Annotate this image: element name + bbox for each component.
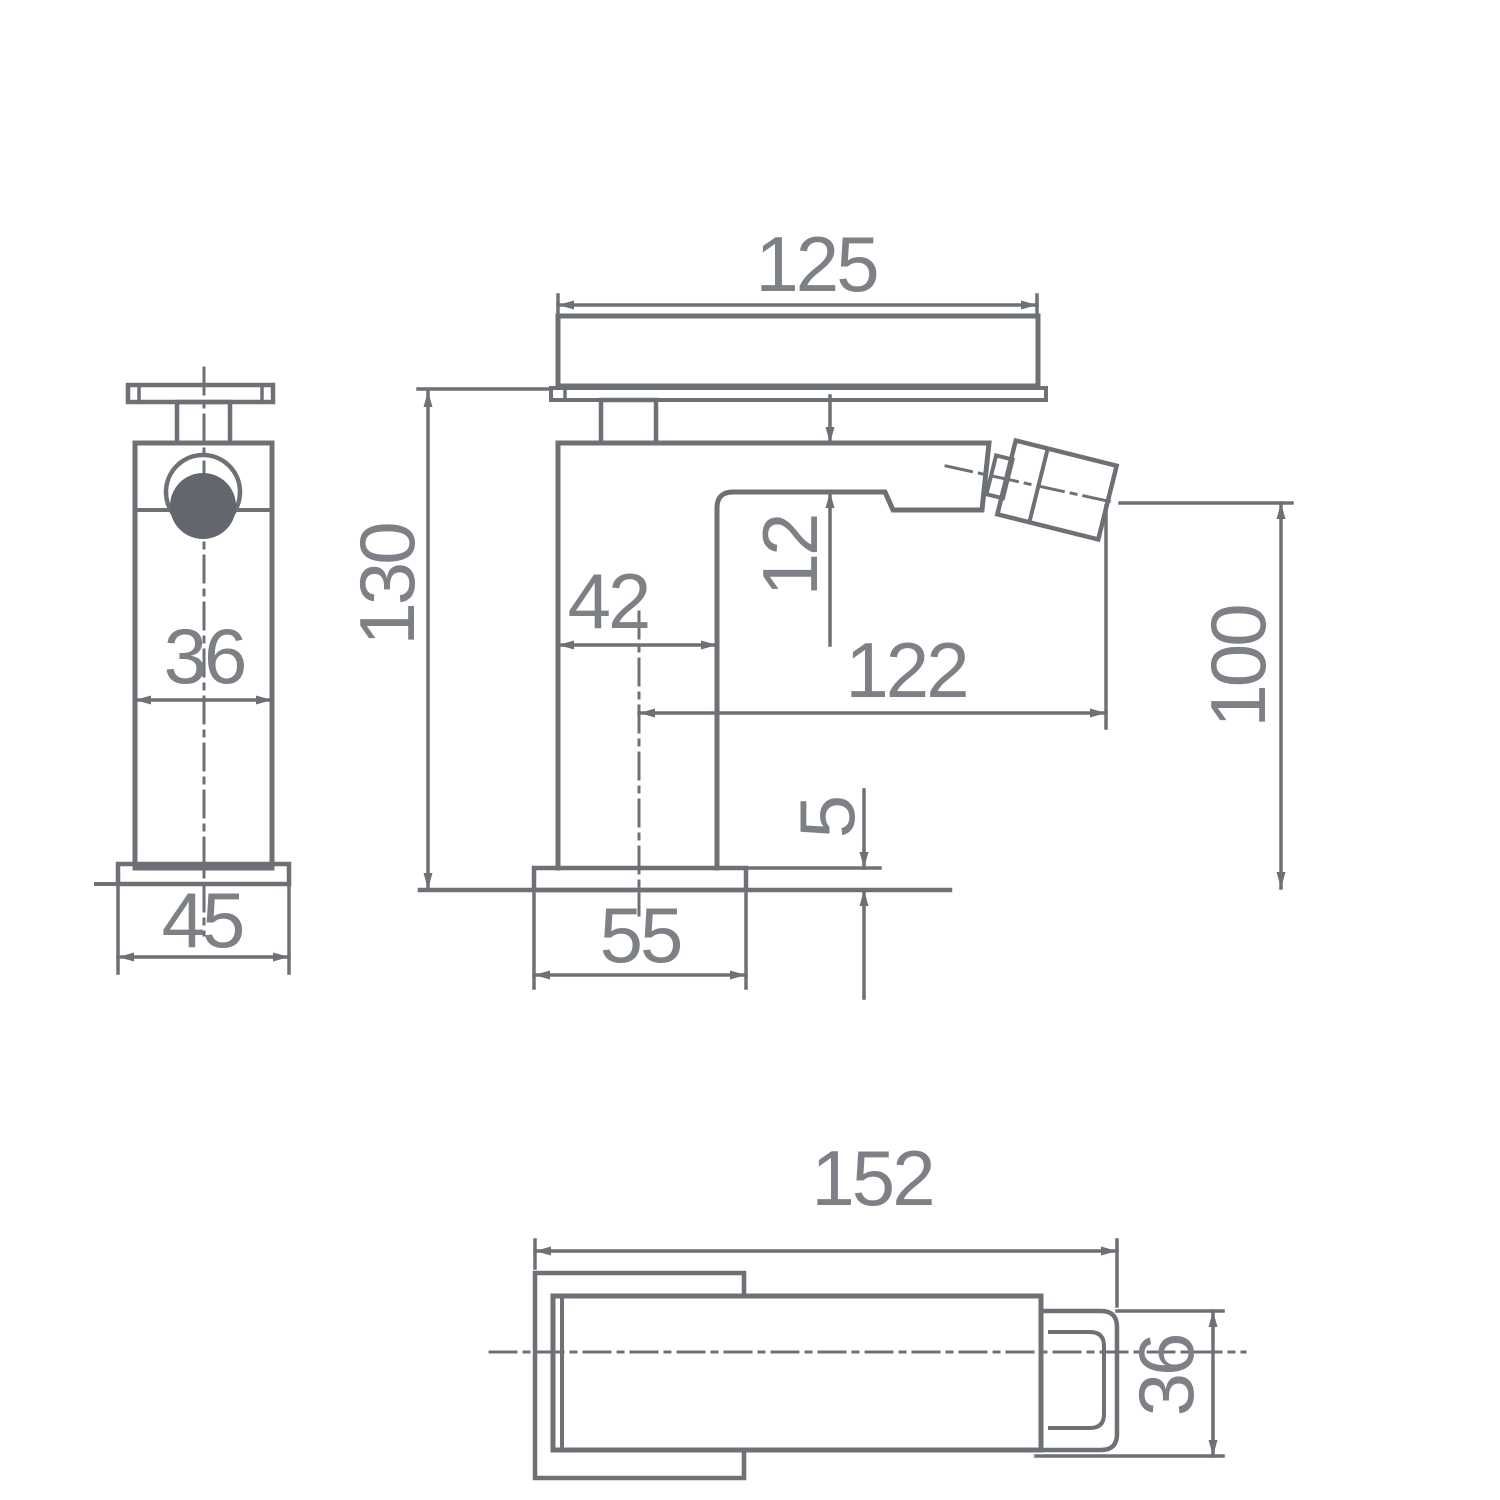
side-handle-endcaps <box>139 385 262 402</box>
dim-label-spout-height: 100 <box>1199 606 1277 727</box>
dim-label-plan-width: 36 <box>1127 1336 1205 1417</box>
dim-label-spout-offset: 12 <box>751 516 829 597</box>
dim-label-body-depth: 42 <box>568 562 649 640</box>
dim-label-side-width: 36 <box>164 617 245 695</box>
front-stem <box>601 400 656 443</box>
front-aerator-axis <box>946 466 1112 502</box>
faucet-drawing-linework <box>0 0 1500 1500</box>
dim-label-spout-reach: 122 <box>845 631 966 709</box>
dim-label-side-base: 45 <box>162 881 243 959</box>
dim-label-base-thickness: 5 <box>788 798 866 838</box>
plan-body <box>553 1296 1041 1450</box>
dim-label-plan-length: 152 <box>811 1139 932 1217</box>
side-spout-solid-circle <box>170 473 236 539</box>
front-lever-handle <box>558 316 1038 386</box>
technical-drawing-canvas: 125 130 42 12 122 100 5 55 36 45 152 36 <box>0 0 1500 1500</box>
dim-label-handle-length: 125 <box>755 225 876 303</box>
plan-handle-plate-outline <box>535 1273 744 1478</box>
dim-label-overall-height: 130 <box>348 524 426 645</box>
side-handle-bar <box>128 385 273 402</box>
plan-aerator-inner <box>1050 1332 1104 1428</box>
dim-label-base-length: 55 <box>600 896 681 974</box>
